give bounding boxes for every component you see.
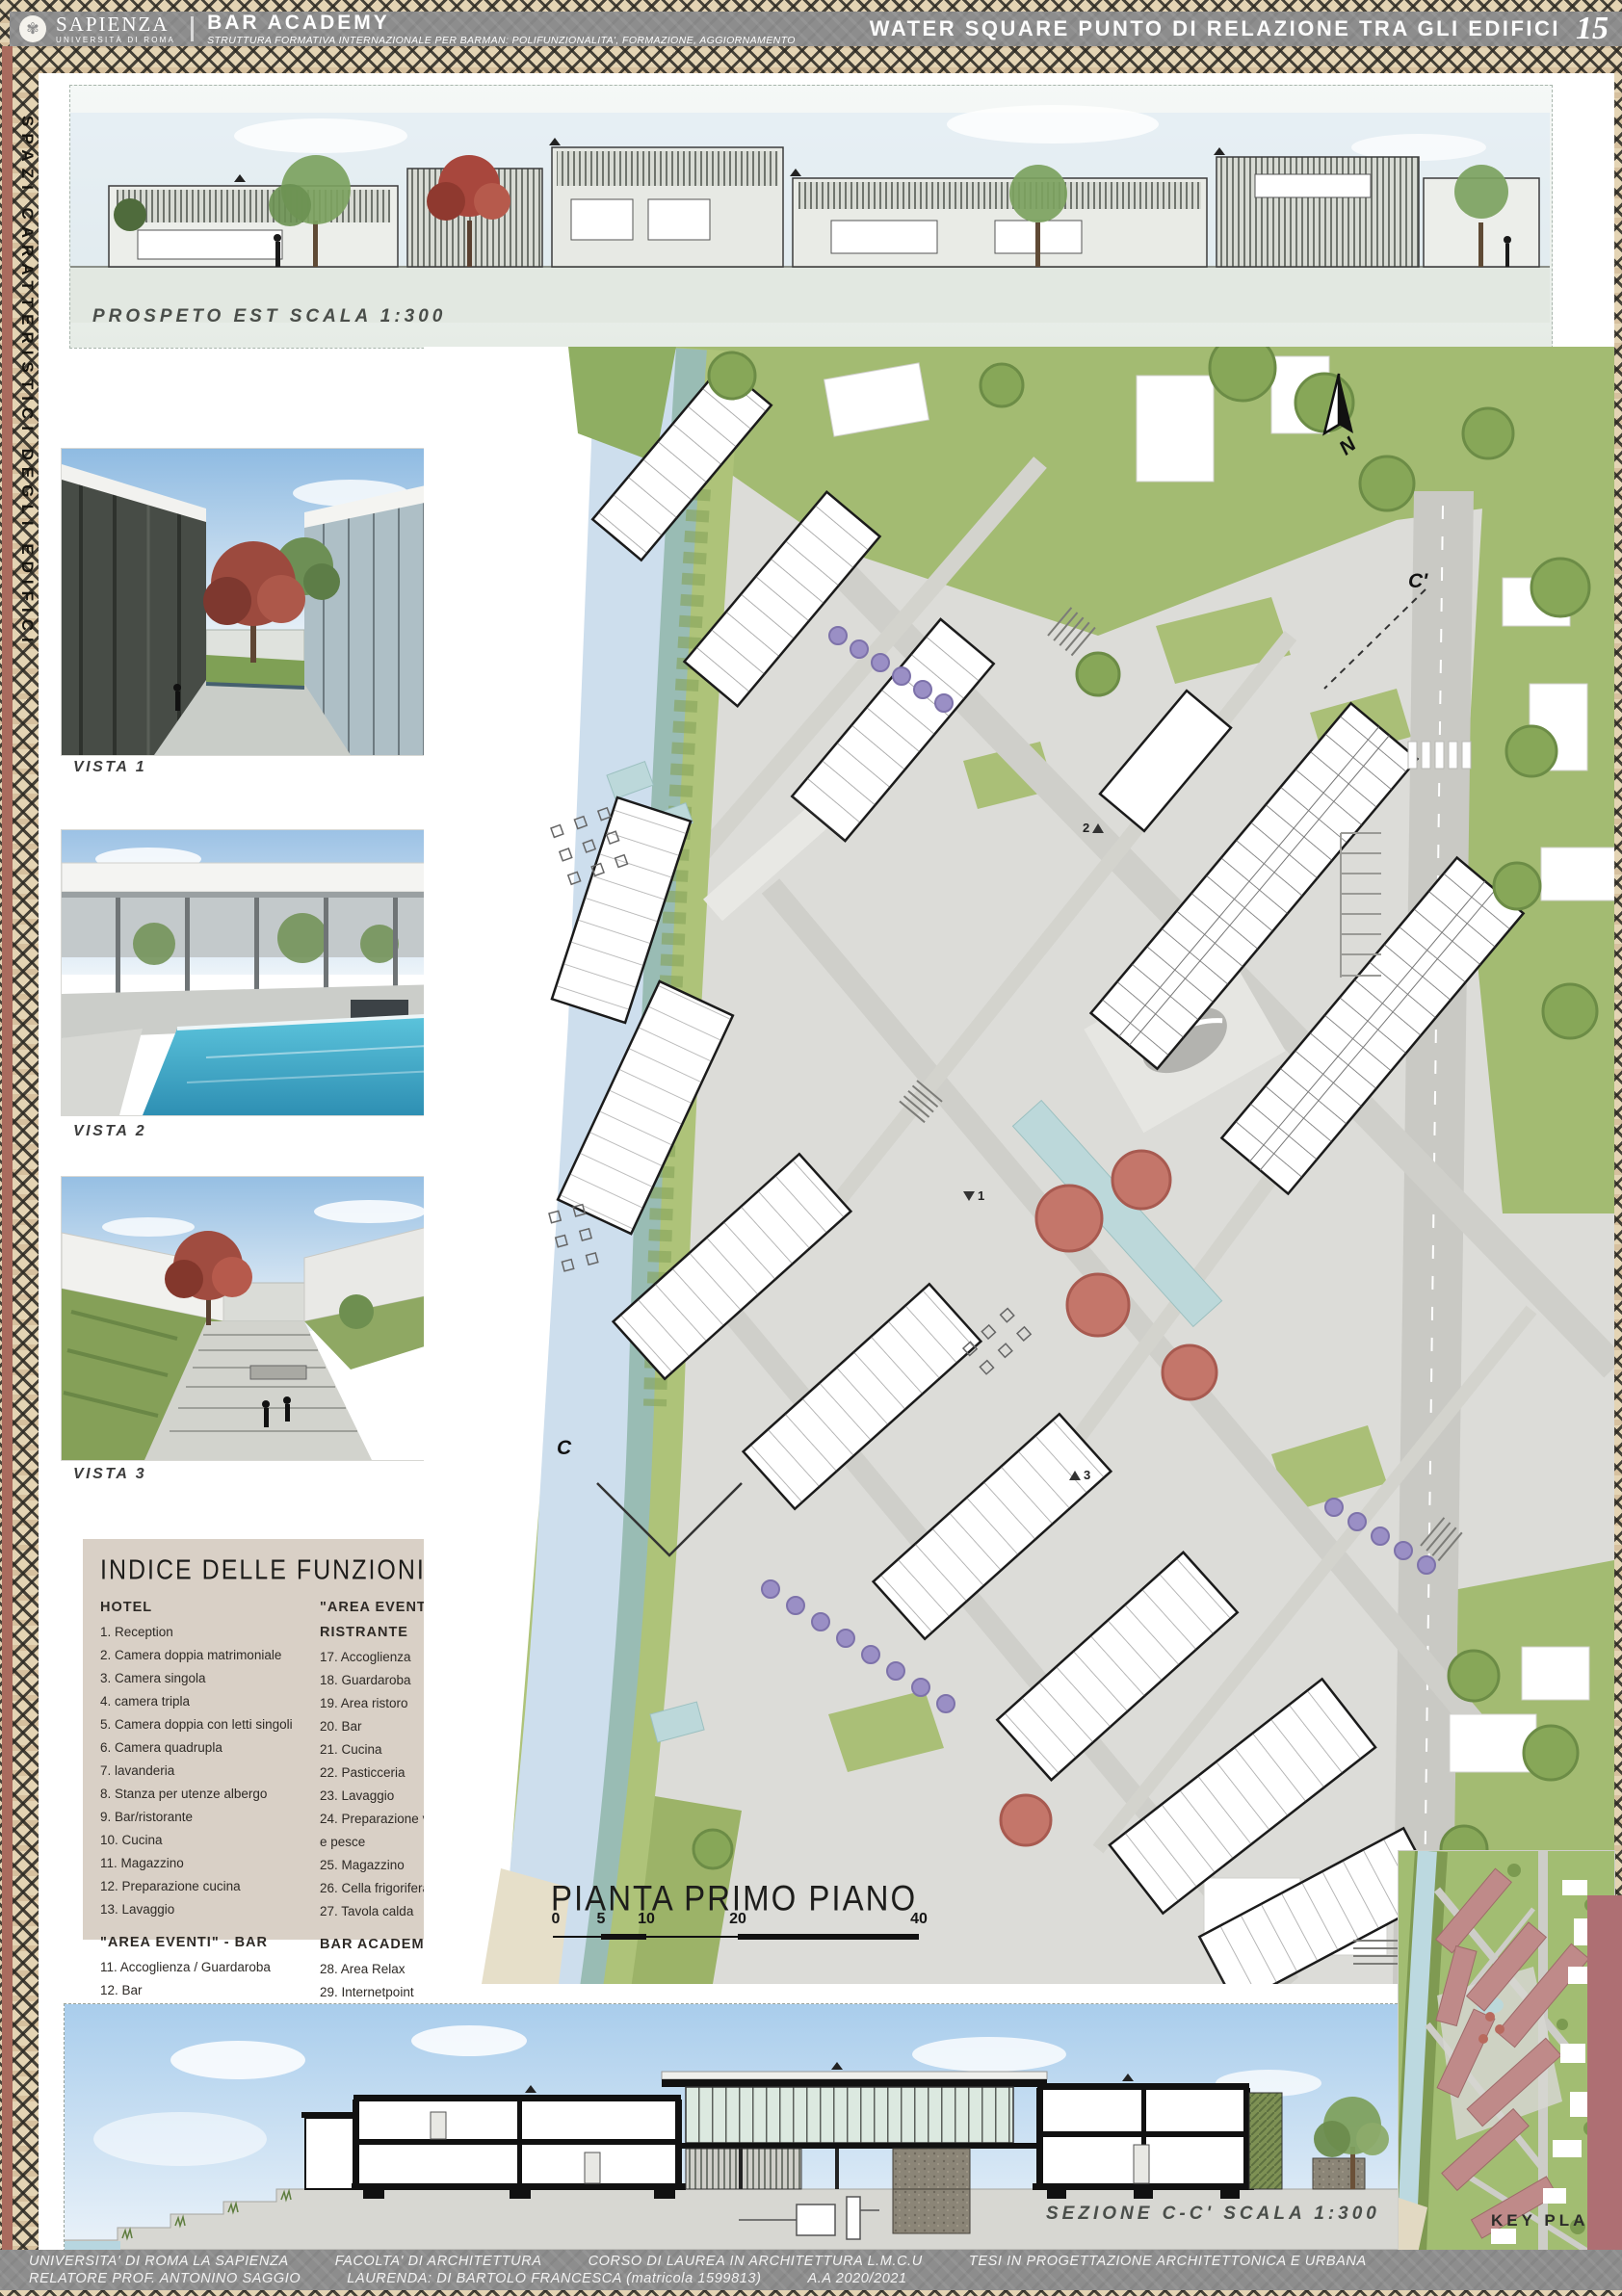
index-item: 29. Internetpoint bbox=[320, 1981, 474, 2004]
index-item: 9. Bar/ristorante bbox=[100, 1806, 320, 1829]
keyplan-accent-band bbox=[1587, 1895, 1622, 2254]
vista-2-image bbox=[62, 830, 443, 1115]
index-item: 8. Stanza per utenze albergo bbox=[100, 1783, 320, 1806]
index-item: 4. camera tripla bbox=[100, 1690, 320, 1713]
project-subtitle: STRUTTURA FORMATIVA INTERNAZIONALE PER B… bbox=[207, 36, 796, 46]
board-number: 15 bbox=[1576, 11, 1609, 47]
index-group-heading: "AREA EVENTI" - BAR bbox=[100, 1931, 320, 1956]
vista-3-image bbox=[62, 1177, 443, 1460]
index-item: 5. Camera doppia con letti singoli bbox=[100, 1713, 320, 1736]
board-title-block: WATER SQUARE PUNTO DI RELAZIONE TRA GLI … bbox=[870, 11, 1622, 47]
sapienza-logo-icon: ✾ bbox=[19, 15, 46, 42]
footer-relatore: RELATORE PROF. ANTONINO SAGGIO bbox=[29, 2271, 301, 2286]
scale-bar: 0 5 10 20 40 bbox=[553, 1911, 938, 1953]
footer-line-2: RELATORE PROF. ANTONINO SAGGIO LAURENDA:… bbox=[0, 2270, 1622, 2287]
elevation-caption: PROSPETO EST SCALA 1:300 bbox=[92, 306, 446, 327]
footer-line-1: UNIVERSITA' DI ROMA LA SAPIENZA FACOLTA'… bbox=[0, 2253, 1622, 2270]
index-item: 12. Bar bbox=[100, 1979, 320, 2002]
footer-year: A.A 2020/2021 bbox=[808, 2271, 907, 2286]
project-title: BAR ACADEMY bbox=[207, 13, 796, 33]
index-item: 6. Camera quadrupla bbox=[100, 1736, 320, 1760]
footer-faculty: FACOLTA' DI ARCHITETTURA bbox=[335, 2254, 542, 2269]
scale-tick: 5 bbox=[597, 1911, 606, 1928]
scale-bar-segment bbox=[601, 1934, 646, 1940]
scale-tick: 20 bbox=[729, 1911, 746, 1928]
index-item: 3. Camera singola bbox=[100, 1667, 320, 1690]
presentation-board: ✾ SAPIENZA UNIVERSITÀ DI ROMA BAR ACADEM… bbox=[0, 0, 1622, 2296]
project-block: BAR ACADEMY STRUTTURA FORMATIVA INTERNAZ… bbox=[207, 13, 796, 46]
vista-1-image bbox=[62, 449, 443, 755]
site-plan bbox=[424, 347, 1614, 1984]
university-title: SAPIENZA bbox=[56, 14, 175, 35]
index-item: 11. Magazzino bbox=[100, 1852, 320, 1875]
scale-tick: 0 bbox=[552, 1911, 561, 1928]
scale-tick: 40 bbox=[910, 1911, 928, 1928]
scale-bar-segment bbox=[738, 1934, 919, 1940]
university-name: SAPIENZA UNIVERSITÀ DI ROMA bbox=[56, 14, 175, 44]
vista-2-caption: VISTA 2 bbox=[73, 1123, 146, 1140]
university-subtitle: UNIVERSITÀ DI ROMA bbox=[56, 37, 175, 44]
index-item: 12. Preparazione cucina bbox=[100, 1875, 320, 1898]
view-marker-1: 1 bbox=[963, 1188, 984, 1203]
index-item: 11. Accoglienza / Guardaroba bbox=[100, 1956, 320, 1979]
key-plan bbox=[1399, 1851, 1614, 2254]
view-marker-triangle-icon bbox=[1069, 1471, 1081, 1480]
index-group-items: 1. Reception2. Camera doppia matrimonial… bbox=[100, 1621, 320, 1921]
sidebar-vertical-title: SPAZI CARATTERISTICI DEGLI EDIFICI bbox=[8, 116, 37, 1175]
index-item: 13. Lavaggio bbox=[100, 1898, 320, 1921]
scale-tick: 10 bbox=[638, 1911, 655, 1928]
footer-candidate: LAURENDA: DI BARTOLO FRANCESCA (matricol… bbox=[347, 2271, 761, 2286]
index-item: 2. Camera doppia matrimoniale bbox=[100, 1644, 320, 1667]
header-divider bbox=[191, 16, 194, 41]
section-caption: SEZIONE C-C' SCALA 1:300 bbox=[1046, 2204, 1380, 2225]
footer-thesis: TESI IN PROGETTAZIONE ARCHITETTONICA E U… bbox=[969, 2254, 1367, 2269]
view-marker-3: 3 bbox=[1069, 1468, 1090, 1482]
index-title: INDICE DELLE FUNZIONI bbox=[100, 1554, 474, 1586]
view-marker-triangle-icon bbox=[1092, 823, 1104, 833]
footer-course: CORSO DI LAUREA IN ARCHITETTURA L.M.C.U bbox=[589, 2254, 923, 2269]
board-title: WATER SQUARE PUNTO DI RELAZIONE TRA GLI … bbox=[870, 16, 1560, 41]
section-marker-c-prime: C' bbox=[1408, 570, 1427, 593]
header-band: ✾ SAPIENZA UNIVERSITÀ DI ROMA BAR ACADEM… bbox=[10, 12, 1622, 46]
index-item: 10. Cucina bbox=[100, 1829, 320, 1852]
footer-band: UNIVERSITA' DI ROMA LA SAPIENZA FACOLTA'… bbox=[0, 2250, 1622, 2290]
index-group-heading: HOTEL bbox=[100, 1596, 320, 1621]
vista-3-caption: VISTA 3 bbox=[73, 1466, 146, 1483]
index-item: 7. lavanderia bbox=[100, 1760, 320, 1783]
index-item: 1. Reception bbox=[100, 1621, 320, 1644]
view-marker-triangle-icon bbox=[963, 1191, 975, 1201]
view-marker-2: 2 bbox=[1083, 821, 1104, 835]
section-marker-c: C bbox=[557, 1437, 571, 1460]
footer-university: UNIVERSITA' DI ROMA LA SAPIENZA bbox=[29, 2254, 289, 2269]
vista-1-caption: VISTA 1 bbox=[73, 759, 146, 776]
